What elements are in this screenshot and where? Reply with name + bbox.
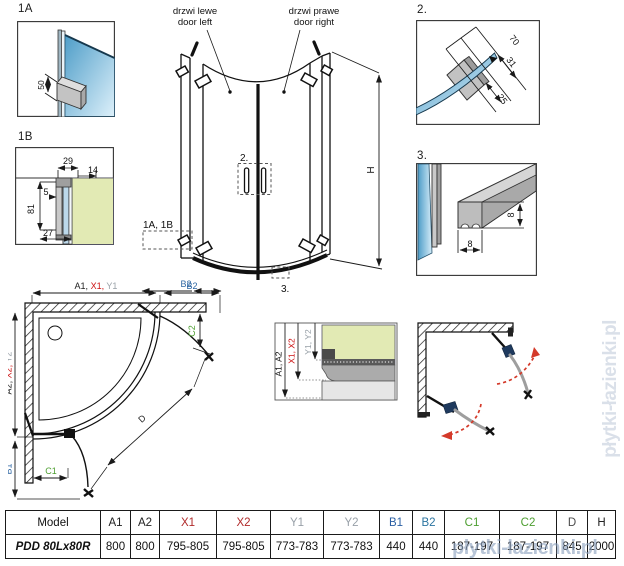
col-header-b1: B1 bbox=[380, 511, 413, 535]
door-left-open bbox=[25, 413, 93, 497]
door-left-label-pl: drzwi lewe bbox=[173, 6, 217, 17]
shower-tray bbox=[39, 318, 141, 420]
detail-1a-label: 1A bbox=[18, 3, 33, 15]
col-header-x1: X1 bbox=[160, 511, 217, 535]
detail-1a-drawing: 50 bbox=[17, 21, 115, 117]
col-header-a2: A2 bbox=[131, 511, 160, 535]
main-enclosure-drawing: drzwi lewe door left drzwi prawe door ri… bbox=[130, 0, 400, 300]
detail-1b-label: 1B bbox=[18, 131, 33, 143]
value-cell: 795-805 bbox=[217, 535, 271, 559]
value-cell: 440 bbox=[413, 535, 445, 559]
dim-8v-label: 8 bbox=[506, 212, 516, 217]
door-handles bbox=[245, 168, 266, 193]
leader-dot-right bbox=[282, 90, 285, 93]
model-name-cell: PDD 80Lx80R bbox=[6, 535, 101, 559]
table-row: PDD 80Lx80R800800795-805795-805773-78377… bbox=[6, 535, 616, 559]
dim-d-lines bbox=[91, 359, 205, 489]
wall-end-cap bbox=[418, 412, 430, 417]
spec-table: ModelA1A2X1X2Y1Y2B1B2C1C2DHPDD 80Lx80R80… bbox=[5, 510, 616, 559]
door-handle-plan bbox=[84, 489, 93, 497]
section-dim-x-label: X1, X2 bbox=[287, 338, 297, 364]
walls bbox=[25, 303, 206, 483]
section-dim-a-label: A1, A2 bbox=[274, 351, 284, 376]
leader-dot-left bbox=[228, 90, 231, 93]
dim-d-label: D bbox=[136, 413, 148, 425]
dim-b2-plan-label: B2 bbox=[186, 281, 197, 291]
value-cell: 440 bbox=[380, 535, 413, 559]
dim-a2-label: A2, bbox=[8, 378, 14, 394]
dim-c2-ext bbox=[193, 348, 210, 354]
technical-drawing-sheet: 1A 50 1B bbox=[0, 0, 624, 566]
pivot-pin-right bbox=[314, 42, 319, 54]
door-glass-bottom bbox=[455, 410, 489, 431]
dim-81-label: 81 bbox=[26, 204, 36, 214]
col-header-c1: C1 bbox=[445, 511, 500, 535]
dim-c2-label: C2 bbox=[187, 325, 197, 337]
door-handles bbox=[486, 390, 532, 435]
dim-14-label: 14 bbox=[88, 165, 98, 175]
table-header-row: ModelA1A2X1X2Y1Y2B1B2C1C2DH bbox=[6, 511, 616, 535]
value-cell: 773-783 bbox=[271, 535, 324, 559]
callout-hinge-label: 1A, 1B bbox=[143, 220, 173, 231]
dim-27-label: 27 bbox=[43, 228, 53, 238]
glass-edge-section bbox=[72, 178, 113, 244]
wall-profile bbox=[58, 30, 65, 117]
dim-y1-label: Y1 bbox=[106, 281, 117, 291]
door-left-label-en: door left bbox=[178, 17, 213, 28]
value-cell: 795-805 bbox=[160, 535, 217, 559]
plan-left-dim-label: A2, X2, Y2 bbox=[8, 352, 14, 395]
dim-y2-label: Y2 bbox=[8, 352, 14, 363]
clamp-section bbox=[322, 349, 335, 359]
door-swing-drawing bbox=[405, 295, 560, 445]
door-glass-top bbox=[510, 355, 528, 393]
dim-x2-label: X2, bbox=[8, 363, 14, 379]
col-header-x2: X2 bbox=[217, 511, 271, 535]
detail-1b-drawing: 29 14 5 81 27 bbox=[15, 147, 114, 245]
col-header-c2: C2 bbox=[500, 511, 557, 535]
value-cell: 187-197 bbox=[445, 535, 500, 559]
wall-end-cap-2 bbox=[508, 328, 513, 337]
section-dim-y-label: Y1, Y2 bbox=[303, 329, 313, 355]
callout-handle-label: 2. bbox=[240, 153, 248, 164]
value-cell: 773-783 bbox=[324, 535, 380, 559]
value-cell: 2000 bbox=[588, 535, 616, 559]
col-header-model: Model bbox=[6, 511, 101, 535]
dim-29-label: 29 bbox=[63, 156, 73, 166]
detail-3-label: 3. bbox=[417, 150, 427, 162]
callout-seal-label: 3. bbox=[281, 284, 289, 295]
detail-2-label: 2. bbox=[417, 4, 427, 16]
plan-view-drawing: A1, X1, Y1 B2 bbox=[8, 280, 230, 510]
walls bbox=[418, 323, 513, 417]
col-header-y1: Y1 bbox=[271, 511, 324, 535]
threshold-profile bbox=[322, 365, 395, 381]
detail-3-drawing: 8 8 bbox=[416, 163, 537, 276]
dim-x1-label: X1, bbox=[91, 281, 107, 291]
col-header-d: D bbox=[557, 511, 588, 535]
mount-section-drawing: A1, A2 X1, X2 Y1, Y2 bbox=[272, 318, 400, 405]
wall-profile-section bbox=[63, 178, 72, 244]
col-header-h: H bbox=[588, 511, 616, 535]
value-cell: 800 bbox=[101, 535, 131, 559]
door-right-label-en: door right bbox=[294, 17, 334, 28]
dim-8h-label: 8 bbox=[467, 239, 472, 249]
seal-strip bbox=[322, 359, 395, 365]
col-header-a1: A1 bbox=[101, 511, 131, 535]
dim-50-label: 50 bbox=[36, 80, 46, 90]
dim-h bbox=[330, 52, 382, 269]
door-right-label-pl: drzwi prawe bbox=[289, 6, 340, 17]
dim-b1-label: B1 bbox=[8, 463, 14, 474]
dim-h-label: H bbox=[366, 166, 377, 173]
value-cell: 845 bbox=[557, 535, 588, 559]
watermark-side: płytki-łazienki.pl bbox=[600, 283, 622, 495]
col-header-y2: Y2 bbox=[324, 511, 380, 535]
plan-top-dim-label: A1, X1, Y1 bbox=[75, 281, 118, 291]
value-cell: 187-197 bbox=[500, 535, 557, 559]
col-header-b2: B2 bbox=[413, 511, 445, 535]
tray-section bbox=[322, 381, 395, 400]
dim-a1-label: A1, bbox=[75, 281, 91, 291]
value-cell: 800 bbox=[131, 535, 160, 559]
detail-2-drawing: 70 31 25 bbox=[416, 20, 540, 125]
bottom-rail bbox=[193, 255, 327, 272]
dim-5-label: 5 bbox=[43, 187, 48, 197]
hinge-plates bbox=[176, 65, 332, 255]
pivot-pin-left bbox=[192, 43, 197, 55]
dim-c1-label: C1 bbox=[45, 466, 57, 476]
